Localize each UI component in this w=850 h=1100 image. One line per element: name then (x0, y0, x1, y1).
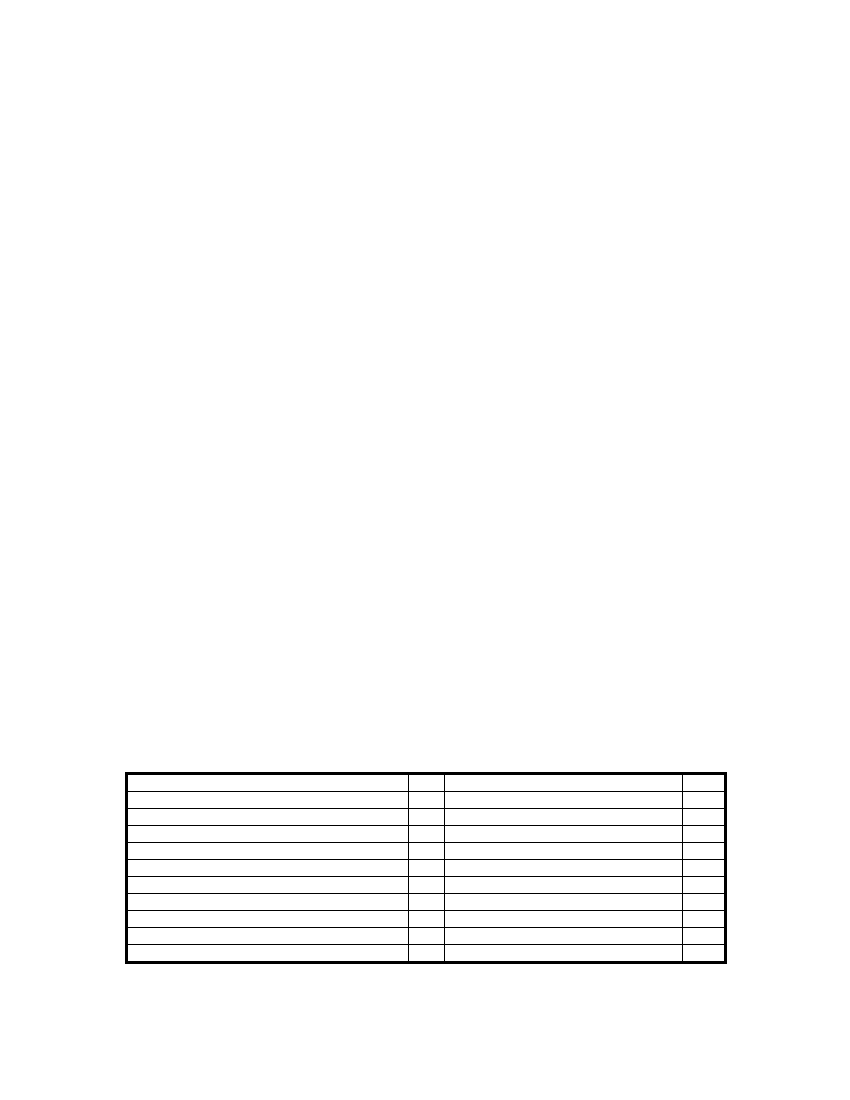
table-cell (683, 894, 726, 911)
table-cell (683, 809, 726, 826)
table-cell (409, 774, 445, 792)
table-row (127, 894, 726, 911)
table-row (127, 826, 726, 843)
table-cell (445, 826, 683, 843)
table-cell (445, 911, 683, 928)
table-row (127, 945, 726, 963)
table-cell (409, 826, 445, 843)
table-cell (445, 860, 683, 877)
table-cell (683, 774, 726, 792)
table-cell (409, 843, 445, 860)
table-cell (127, 877, 409, 894)
table-cell (409, 945, 445, 963)
table-row (127, 877, 726, 894)
table-row (127, 911, 726, 928)
table-cell (409, 877, 445, 894)
table-cell (409, 928, 445, 945)
empty-form-table (125, 772, 727, 964)
table-body (127, 774, 726, 963)
table-cell (683, 843, 726, 860)
table-cell (683, 877, 726, 894)
table-cell (127, 860, 409, 877)
table-cell (127, 809, 409, 826)
table-cell (409, 809, 445, 826)
table-cell (683, 792, 726, 809)
table-cell (445, 877, 683, 894)
table-cell (127, 911, 409, 928)
table-cell (445, 945, 683, 963)
table-row (127, 843, 726, 860)
table-cell (445, 843, 683, 860)
table-cell (127, 894, 409, 911)
table-cell (127, 945, 409, 963)
table-cell (409, 792, 445, 809)
table-cell (127, 792, 409, 809)
table-cell (683, 928, 726, 945)
table-cell (683, 860, 726, 877)
table-row (127, 860, 726, 877)
table-row (127, 774, 726, 792)
table-row (127, 792, 726, 809)
table-cell (683, 826, 726, 843)
table-cell (445, 928, 683, 945)
table-row (127, 809, 726, 826)
table-cell (127, 928, 409, 945)
table-cell (127, 774, 409, 792)
table-row (127, 928, 726, 945)
table-cell (683, 911, 726, 928)
document-page (0, 0, 850, 1100)
table-cell (445, 894, 683, 911)
table-cell (127, 826, 409, 843)
table-cell (409, 894, 445, 911)
table-cell (683, 945, 726, 963)
table-cell (445, 774, 683, 792)
table-cell (445, 792, 683, 809)
table-cell (409, 911, 445, 928)
table-cell (445, 809, 683, 826)
table-cell (127, 843, 409, 860)
table-cell (409, 860, 445, 877)
